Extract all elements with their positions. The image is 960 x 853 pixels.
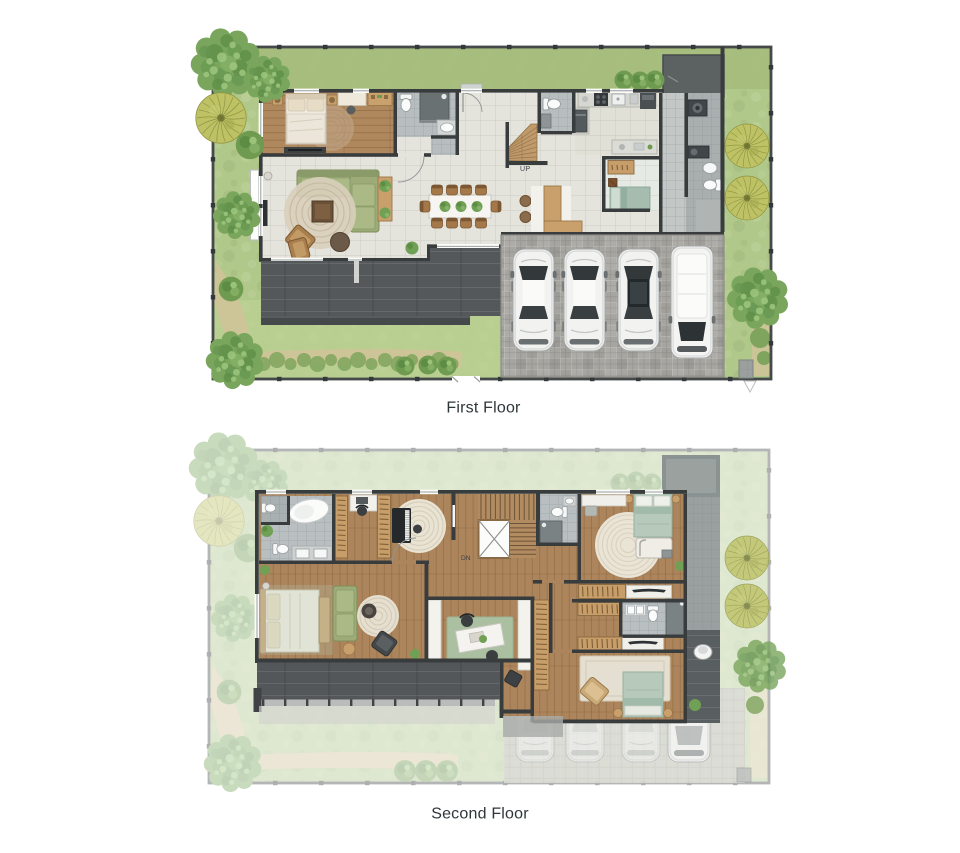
svg-text:Second Floor: Second Floor <box>431 806 529 823</box>
svg-text:First Floor: First Floor <box>446 400 521 417</box>
svg-text:UP: UP <box>520 166 531 173</box>
svg-text:DN: DN <box>461 555 471 562</box>
